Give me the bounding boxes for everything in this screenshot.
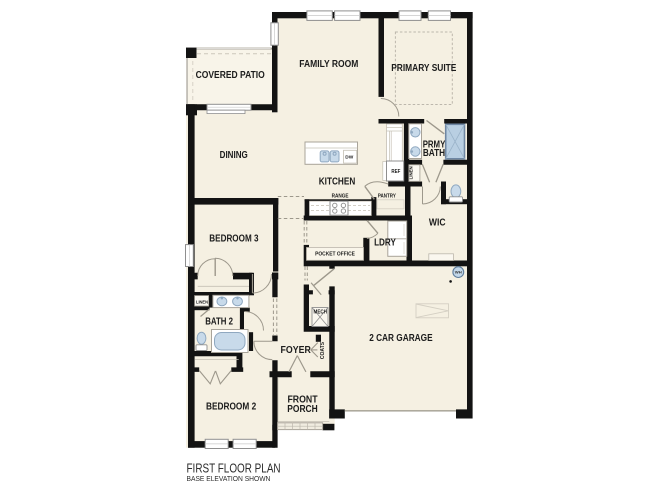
svg-text:REF: REF (391, 169, 401, 175)
svg-text:LINEN: LINEN (409, 166, 414, 179)
svg-text:PORCH: PORCH (287, 404, 318, 415)
svg-text:DW: DW (345, 154, 354, 159)
svg-text:KITCHEN: KITCHEN (319, 176, 356, 187)
svg-text:PRIMARY SUITE: PRIMARY SUITE (391, 63, 457, 74)
svg-text:2 CAR GARAGE: 2 CAR GARAGE (369, 333, 433, 344)
svg-text:MECH: MECH (314, 309, 328, 315)
svg-text:COATS: COATS (320, 341, 326, 359)
svg-text:POCKET OFFICE: POCKET OFFICE (315, 252, 355, 258)
svg-text:BATH: BATH (423, 148, 445, 159)
svg-text:BASE ELEVATION SHOWN: BASE ELEVATION SHOWN (187, 474, 271, 483)
svg-text:DINING: DINING (220, 150, 248, 161)
svg-text:FAMILY ROOM: FAMILY ROOM (299, 59, 358, 70)
svg-text:BEDROOM 2: BEDROOM 2 (206, 401, 257, 412)
svg-text:LINEN: LINEN (196, 299, 208, 304)
svg-text:BEDROOM 3: BEDROOM 3 (209, 233, 259, 244)
svg-text:RANGE: RANGE (332, 194, 349, 200)
svg-text:FOYER: FOYER (281, 345, 311, 356)
svg-text:PANTRY: PANTRY (378, 194, 397, 200)
svg-text:WIC: WIC (429, 218, 446, 229)
svg-text:COVERED PATIO: COVERED PATIO (196, 70, 266, 81)
svg-text:WH: WH (455, 270, 462, 275)
svg-text:LDRY: LDRY (374, 237, 396, 248)
svg-text:BATH 2: BATH 2 (205, 316, 233, 327)
